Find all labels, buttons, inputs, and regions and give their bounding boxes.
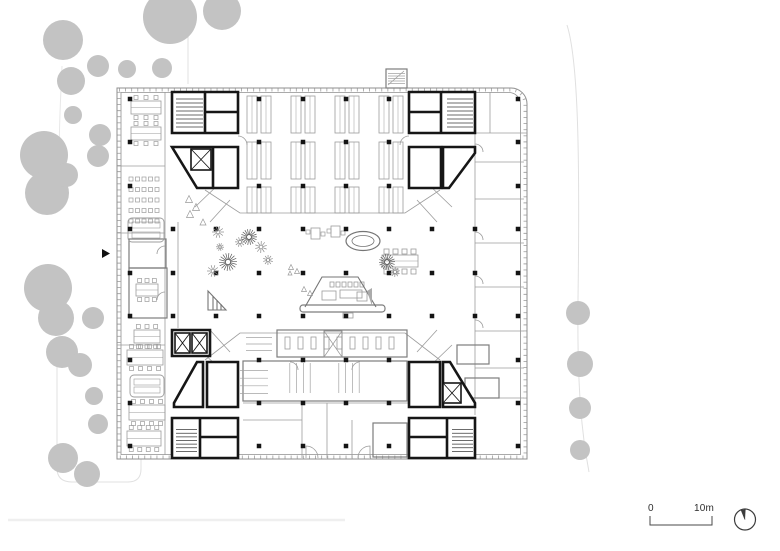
- column-dot: [301, 444, 306, 449]
- column-dot: [387, 358, 392, 363]
- column-dot: [128, 314, 133, 319]
- tree: [203, 0, 241, 30]
- column-dot: [387, 401, 392, 406]
- column-dot: [344, 140, 349, 145]
- column-dot: [344, 358, 349, 363]
- tree: [64, 106, 82, 124]
- scale-bracket-line: [650, 516, 712, 525]
- core-wall: [207, 362, 238, 407]
- column-dot: [344, 184, 349, 189]
- tree: [152, 58, 172, 78]
- tree: [87, 55, 109, 77]
- column-dot: [128, 444, 133, 449]
- column-dot: [516, 444, 521, 449]
- tree: [43, 20, 83, 60]
- partition-line: [388, 71, 404, 85]
- column-dot: [301, 401, 306, 406]
- column-dot: [516, 271, 521, 276]
- column-dot: [301, 227, 306, 232]
- column-dot: [473, 314, 478, 319]
- column-dot: [128, 184, 133, 189]
- column-dot: [257, 314, 262, 319]
- column-dot: [128, 227, 133, 232]
- column-dot: [430, 227, 435, 232]
- core-wall: [409, 147, 441, 188]
- column-dot: [430, 314, 435, 319]
- column-dot: [344, 97, 349, 102]
- column-dot: [387, 314, 392, 319]
- column-dot: [516, 184, 521, 189]
- tree: [570, 440, 590, 460]
- column-dot: [301, 271, 306, 276]
- column-dot: [171, 314, 176, 319]
- column-dot: [257, 140, 262, 145]
- north-needle-head: [741, 509, 745, 519]
- tree: [88, 414, 108, 434]
- column-dot: [128, 401, 133, 406]
- column-dot: [301, 184, 306, 189]
- column-dot: [387, 227, 392, 232]
- north-arrow-icon: [732, 506, 758, 532]
- tree: [567, 351, 593, 377]
- column-dot: [516, 401, 521, 406]
- tree: [38, 300, 74, 336]
- column-dot: [344, 444, 349, 449]
- tree: [82, 307, 104, 329]
- tree: [569, 397, 591, 419]
- column-dot: [257, 97, 262, 102]
- column-dot: [128, 97, 133, 102]
- scale-zero-label: 0: [648, 503, 654, 514]
- entrance-marker-icon: [102, 249, 110, 258]
- column-dot: [430, 271, 435, 276]
- column-dot: [257, 401, 262, 406]
- column-dot: [387, 444, 392, 449]
- column-dot: [516, 140, 521, 145]
- column-dot: [344, 271, 349, 276]
- column-dot: [516, 314, 521, 319]
- tree: [87, 145, 109, 167]
- column-dot: [301, 358, 306, 363]
- tree: [85, 387, 103, 405]
- column-dot: [301, 314, 306, 319]
- tree: [74, 461, 100, 487]
- scale-ten-label: 10m: [694, 503, 714, 514]
- column-dot: [387, 140, 392, 145]
- column-dot: [301, 140, 306, 145]
- column-dot: [128, 271, 133, 276]
- tree: [57, 67, 85, 95]
- column-dot: [171, 271, 176, 276]
- tree: [118, 60, 136, 78]
- column-dot: [257, 358, 262, 363]
- column-dot: [516, 97, 521, 102]
- scale-bar-icon: [649, 515, 715, 527]
- column-dot: [473, 227, 478, 232]
- column-dot: [257, 184, 262, 189]
- column-dot: [257, 227, 262, 232]
- core-wall: [409, 362, 440, 407]
- column-dot: [257, 444, 262, 449]
- tree: [68, 353, 92, 377]
- column-dot: [128, 358, 133, 363]
- column-dot: [473, 271, 478, 276]
- column-dot: [516, 227, 521, 232]
- column-dot: [387, 97, 392, 102]
- tree: [54, 163, 78, 187]
- column-dot: [344, 401, 349, 406]
- floor-plan-svg: [0, 0, 780, 551]
- column-dot: [171, 227, 176, 232]
- column-dot: [344, 314, 349, 319]
- column-dot: [257, 271, 262, 276]
- column-dot: [516, 358, 521, 363]
- column-dot: [387, 184, 392, 189]
- tree: [48, 443, 78, 473]
- column-dot: [214, 314, 219, 319]
- column-dot: [301, 97, 306, 102]
- tree: [143, 0, 197, 44]
- column-dot: [344, 227, 349, 232]
- tree: [566, 301, 590, 325]
- tree: [89, 124, 111, 146]
- column-dot: [128, 140, 133, 145]
- floor-plan-page: 0 10m: [0, 0, 780, 551]
